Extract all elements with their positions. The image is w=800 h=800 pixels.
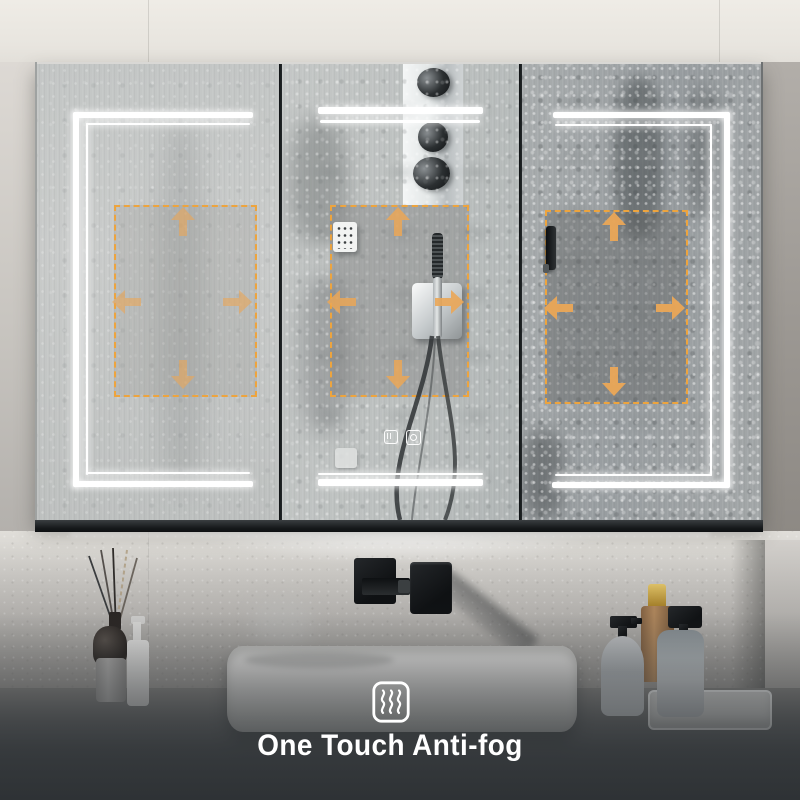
mirror-panel-right [522,64,761,520]
mirror-panel-middle [282,64,519,520]
defog-arrow-left [544,296,574,320]
defog-arrow-up [602,212,626,242]
led-strip-inner-bottom [318,473,483,475]
light-touch-button-icon [406,430,421,445]
led-strip-bottom [73,481,253,487]
defog-arrow-left [327,290,357,314]
wall-upper [0,0,800,64]
led-strip-right [724,112,730,488]
defog-arrow-down [386,359,410,389]
led-strip-inner-top [86,123,250,125]
wall-right-of-cabinet [763,62,800,534]
led-strip-inner-top [555,124,712,126]
tile-joint-line [148,0,149,62]
defog-arrow-down [171,359,195,389]
product-photo-anti-fog-mirror-cabinet: One Touch Anti-fog [0,0,800,800]
led-strip-top [553,112,730,118]
cabinet-right-edge [761,62,763,520]
shelf-item-reflection [335,448,357,468]
led-strip-inner-bottom [555,474,712,476]
led-strip-inner-top [320,120,480,123]
tile-joint-line [719,0,720,62]
led-strip-top [318,107,483,114]
led-strip-left [73,112,79,487]
defog-arrow-up [171,207,195,237]
caption-text: One Touch Anti-fog [257,729,523,763]
door-handle-bracket [543,264,549,273]
defog-arrow-right [434,290,464,314]
defog-arrow-left [112,290,142,314]
led-strip-inner-right [710,124,712,476]
led-strip-inner-left [86,123,88,475]
led-strip-bottom [552,482,730,488]
anti-fog-touch-button-icon [384,430,398,444]
steam-glyph [387,433,393,439]
light-glyph [410,434,417,441]
led-strip-bottom [318,479,483,486]
mirror-panel-left [37,64,279,520]
cabinet-bottom-edge [35,520,763,532]
led-strip-top [73,112,253,118]
led-strip-inner-bottom [86,472,250,474]
defog-arrow-right [222,290,252,314]
defog-arrow-up [386,207,410,237]
wall-left-of-cabinet [0,62,35,534]
shower-hoses-reflection [282,64,519,520]
anti-fog-steam-icon [372,681,410,723]
defog-arrow-down [602,366,626,396]
defog-arrow-right [655,296,685,320]
